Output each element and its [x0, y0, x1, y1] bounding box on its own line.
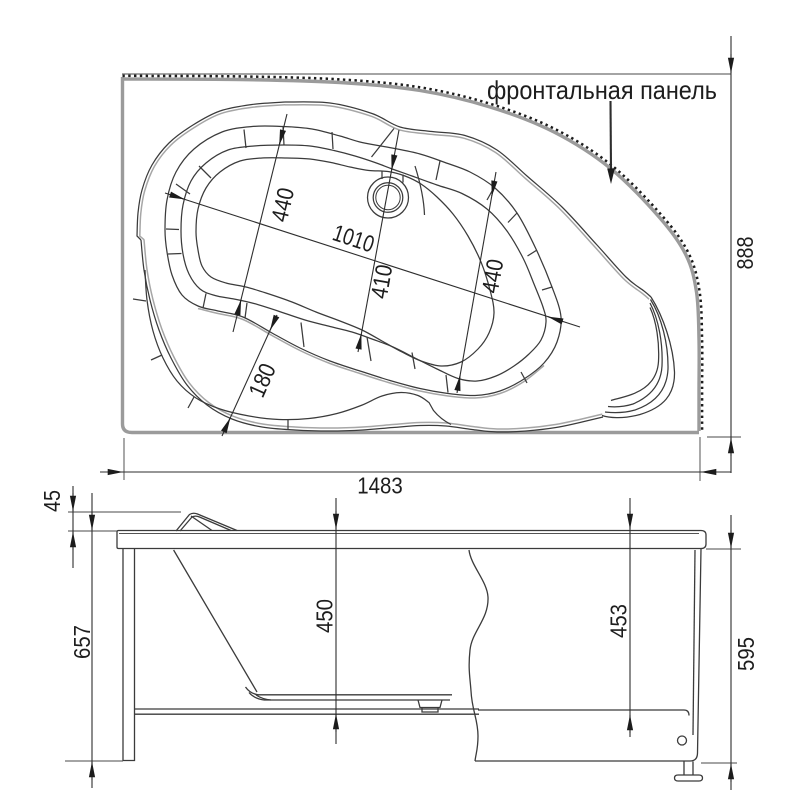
svg-text:453: 453 [606, 604, 632, 638]
svg-text:45: 45 [39, 490, 65, 512]
svg-text:888: 888 [732, 237, 758, 270]
svg-text:1483: 1483 [357, 473, 403, 499]
svg-text:450: 450 [312, 599, 338, 633]
svg-text:657: 657 [69, 625, 95, 659]
svg-text:фронтальная панель: фронтальная панель [487, 75, 717, 105]
svg-text:595: 595 [733, 637, 759, 671]
